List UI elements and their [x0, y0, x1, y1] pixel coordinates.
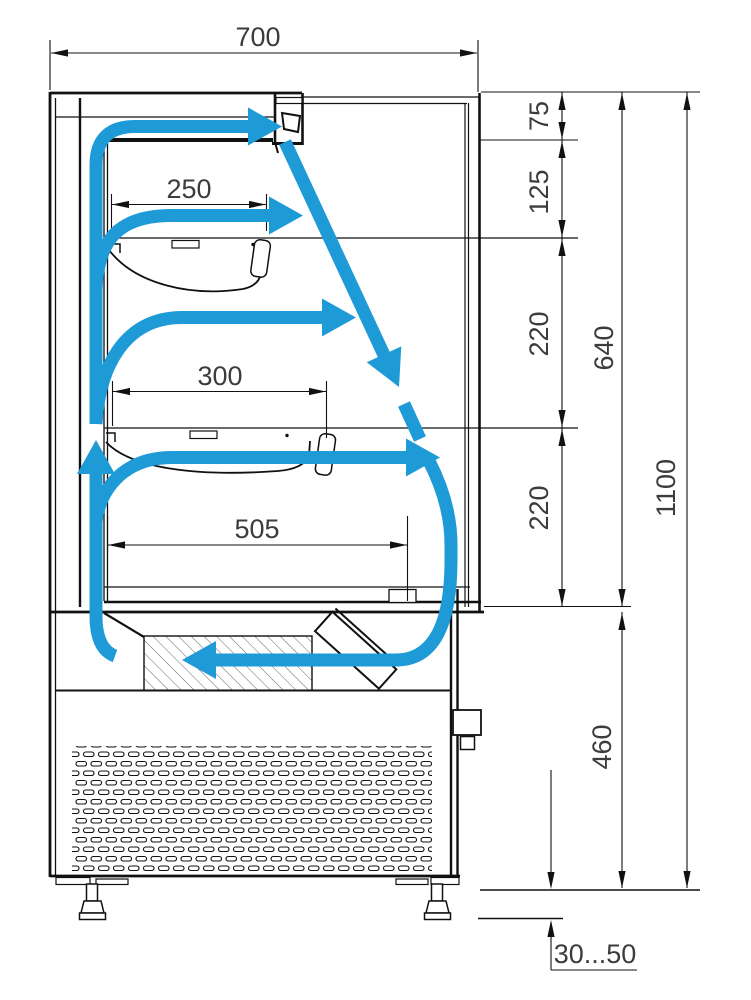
dim-well-depth: 505: [108, 514, 408, 601]
dim-feet-range: 30...50: [478, 770, 637, 970]
dim-opening-height: 640: [589, 92, 626, 606]
counter-deck: [50, 587, 484, 612]
airflow-shelf1: [96, 216, 270, 291]
airflow-deck: [96, 458, 407, 523]
dim-label-75: 75: [524, 101, 554, 131]
dim-label-505: 505: [234, 514, 279, 544]
well-slope: [104, 613, 144, 637]
shelf-clip: [172, 241, 199, 249]
adjustable-foot-right: [425, 884, 451, 920]
base-bottom: [50, 876, 460, 885]
ventilation-grille: [72, 746, 432, 873]
dim-chain-right: 75 125 220 220: [524, 92, 566, 607]
dim-base-height: 460: [587, 612, 626, 888]
shelf-bracket: [109, 250, 262, 291]
dim-label-250: 250: [166, 174, 211, 204]
shelf-screw: [285, 434, 288, 437]
fan-unit: [315, 608, 399, 688]
dim-label-220-upper: 220: [524, 311, 554, 356]
dim-total-height: 1100: [651, 92, 691, 888]
air-deflector: [282, 113, 300, 132]
dim-label-700: 700: [235, 22, 280, 52]
dim-top-width: 700: [50, 22, 478, 92]
airflow-shelf2-arrowhead: [322, 299, 356, 337]
dim-shelf2-depth: 300: [113, 361, 327, 438]
dim-label-125: 125: [524, 169, 554, 214]
shelf-clip: [190, 431, 217, 439]
dim-label-1100: 1100: [651, 459, 681, 517]
airflow-curtain-dash: [404, 404, 420, 439]
adjustable-foot-left: [80, 884, 106, 920]
drawing-canvas: 700 250 300 505: [0, 0, 751, 1000]
dim-label-30-50: 30...50: [554, 939, 637, 969]
dim-label-220-lower: 220: [524, 485, 554, 530]
deck-bumper: [389, 590, 416, 603]
dim-label-640: 640: [589, 325, 619, 370]
dim-label-460: 460: [587, 724, 617, 769]
airflow-shelf1-arrowhead: [269, 197, 303, 235]
display-case-section-drawing: 700 250 300 505: [0, 0, 751, 1000]
dim-label-300: 300: [197, 361, 242, 391]
